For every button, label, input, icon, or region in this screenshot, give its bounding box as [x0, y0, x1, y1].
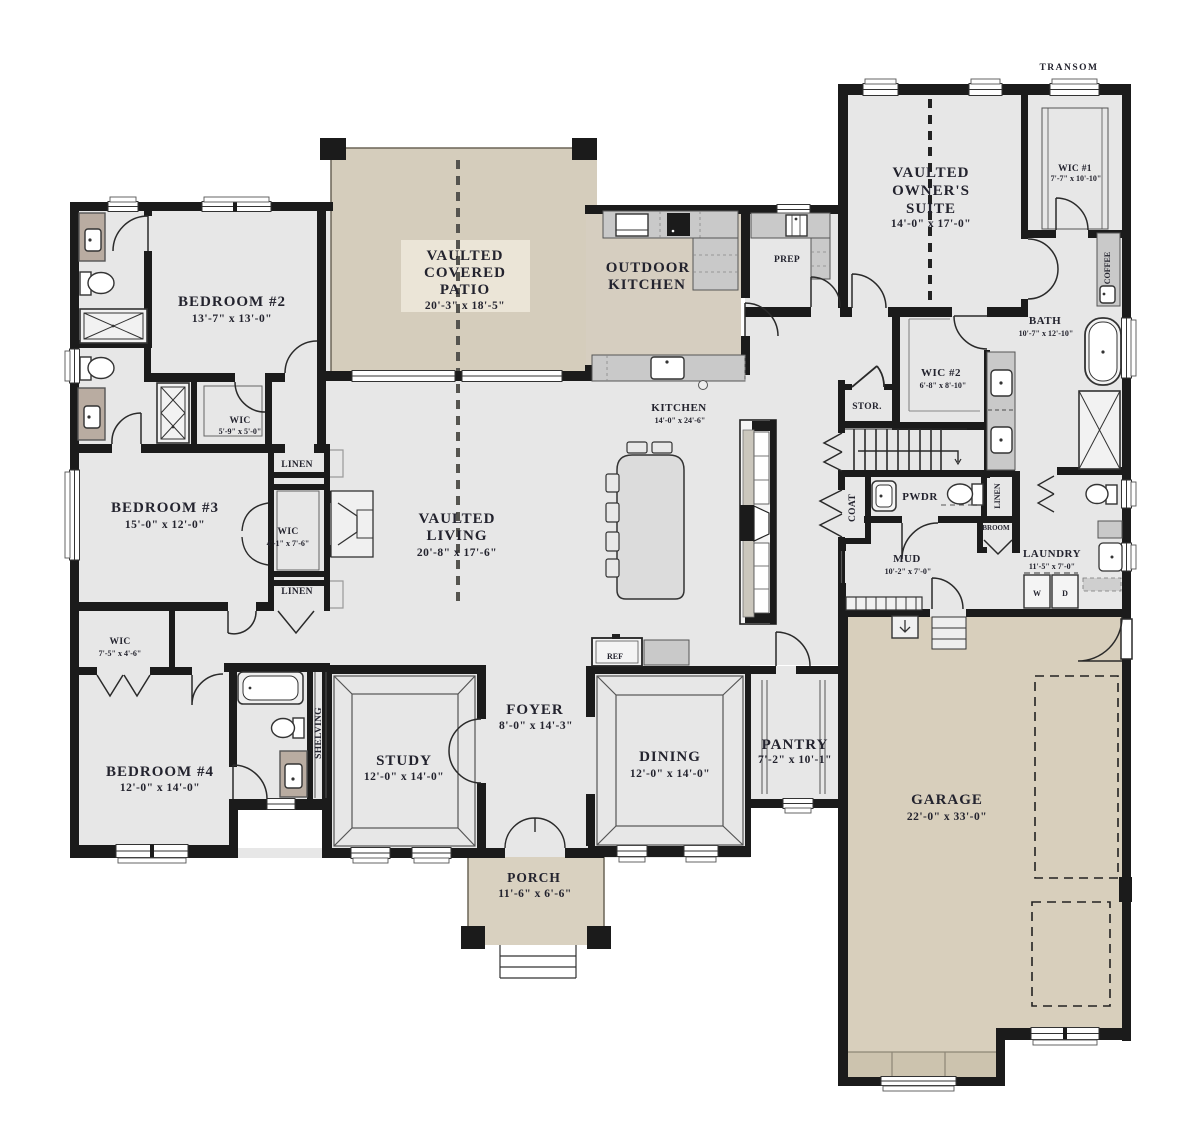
svg-text:7'-5" x 4'-6": 7'-5" x 4'-6" [99, 649, 142, 658]
svg-text:BEDROOM #3: BEDROOM #3 [111, 500, 219, 516]
svg-text:KITCHEN: KITCHEN [651, 402, 706, 414]
svg-text:PORCH: PORCH [507, 870, 561, 885]
svg-text:BROOM: BROOM [982, 524, 1010, 532]
svg-text:OWNER'S: OWNER'S [892, 183, 970, 199]
svg-text:WIC: WIC [110, 637, 131, 647]
svg-text:12'-0" x 14'-0": 12'-0" x 14'-0" [364, 771, 444, 783]
svg-text:4'-1" x 7'-6": 4'-1" x 7'-6" [267, 539, 310, 548]
svg-text:VAULTED: VAULTED [892, 165, 969, 181]
svg-text:COVERED: COVERED [424, 265, 506, 281]
svg-text:14'-0" x 24'-6": 14'-0" x 24'-6" [655, 416, 706, 425]
svg-text:LINEN: LINEN [281, 587, 313, 597]
svg-text:OUTDOOR: OUTDOOR [606, 260, 691, 276]
svg-text:SHELVING: SHELVING [314, 707, 324, 759]
svg-text:11'-6" x 6'-6": 11'-6" x 6'-6" [498, 888, 571, 900]
svg-text:7'-7" x 10'-10": 7'-7" x 10'-10" [1051, 174, 1102, 183]
svg-text:14'-0" x 17'-0": 14'-0" x 17'-0" [891, 218, 971, 230]
svg-text:LAUNDRY: LAUNDRY [1023, 548, 1081, 560]
svg-text:BATH: BATH [1029, 315, 1061, 327]
svg-text:W: W [1033, 589, 1041, 598]
svg-text:11'-5" x 7'-0": 11'-5" x 7'-0" [1029, 562, 1075, 571]
svg-text:LINEN: LINEN [281, 460, 313, 470]
svg-text:PANTRY: PANTRY [762, 737, 829, 753]
svg-text:WIC #2: WIC #2 [921, 367, 961, 379]
svg-text:12'-0" x 14'-0": 12'-0" x 14'-0" [630, 768, 710, 780]
svg-text:PATIO: PATIO [440, 282, 490, 298]
svg-text:KITCHEN: KITCHEN [608, 277, 686, 293]
svg-text:WIC #1: WIC #1 [1058, 164, 1092, 174]
svg-text:MUD: MUD [893, 553, 921, 565]
svg-text:REF: REF [607, 652, 623, 661]
svg-text:COAT: COAT [848, 494, 858, 522]
svg-text:7'-2" x 10'-1": 7'-2" x 10'-1" [758, 754, 832, 766]
svg-text:15'-0" x 12'-0": 15'-0" x 12'-0" [125, 519, 205, 531]
svg-text:WIC: WIC [278, 527, 299, 537]
svg-text:8'-0" x 14'-3": 8'-0" x 14'-3" [499, 720, 573, 732]
svg-text:BEDROOM #2: BEDROOM #2 [178, 294, 286, 310]
svg-text:D: D [1062, 589, 1068, 598]
svg-text:FOYER: FOYER [506, 702, 564, 718]
svg-text:PWDR: PWDR [902, 491, 938, 503]
svg-text:LIVING: LIVING [426, 528, 487, 544]
svg-text:20'-8" x 17'-6": 20'-8" x 17'-6" [417, 547, 497, 559]
svg-text:VAULTED: VAULTED [418, 511, 495, 527]
svg-text:TRANSOM: TRANSOM [1039, 63, 1098, 73]
svg-text:COFFEE: COFFEE [1103, 252, 1112, 284]
svg-text:5'-9" x 5'-0": 5'-9" x 5'-0" [219, 427, 262, 436]
svg-text:PREP: PREP [774, 255, 800, 265]
svg-text:10'-7" x 12'-10": 10'-7" x 12'-10" [1019, 329, 1074, 338]
svg-text:22'-0" x 33'-0": 22'-0" x 33'-0" [907, 811, 987, 823]
svg-text:SUITE: SUITE [906, 201, 956, 217]
svg-text:LINEN: LINEN [993, 483, 1002, 509]
svg-text:10'-2" x 7'-0": 10'-2" x 7'-0" [885, 567, 932, 576]
svg-text:20'-3" x 18'-5": 20'-3" x 18'-5" [425, 300, 505, 312]
svg-text:VAULTED: VAULTED [426, 248, 503, 264]
svg-text:12'-0" x 14'-0": 12'-0" x 14'-0" [120, 782, 200, 794]
svg-text:DINING: DINING [639, 749, 701, 765]
svg-text:13'-7" x 13'-0": 13'-7" x 13'-0" [192, 313, 272, 325]
svg-text:STOR.: STOR. [852, 402, 882, 412]
svg-text:GARAGE: GARAGE [911, 792, 983, 808]
svg-text:6'-8" x 8'-10": 6'-8" x 8'-10" [920, 381, 967, 390]
svg-text:STUDY: STUDY [376, 753, 432, 769]
svg-text:WIC: WIC [230, 416, 251, 426]
svg-text:BEDROOM #4: BEDROOM #4 [106, 764, 214, 780]
